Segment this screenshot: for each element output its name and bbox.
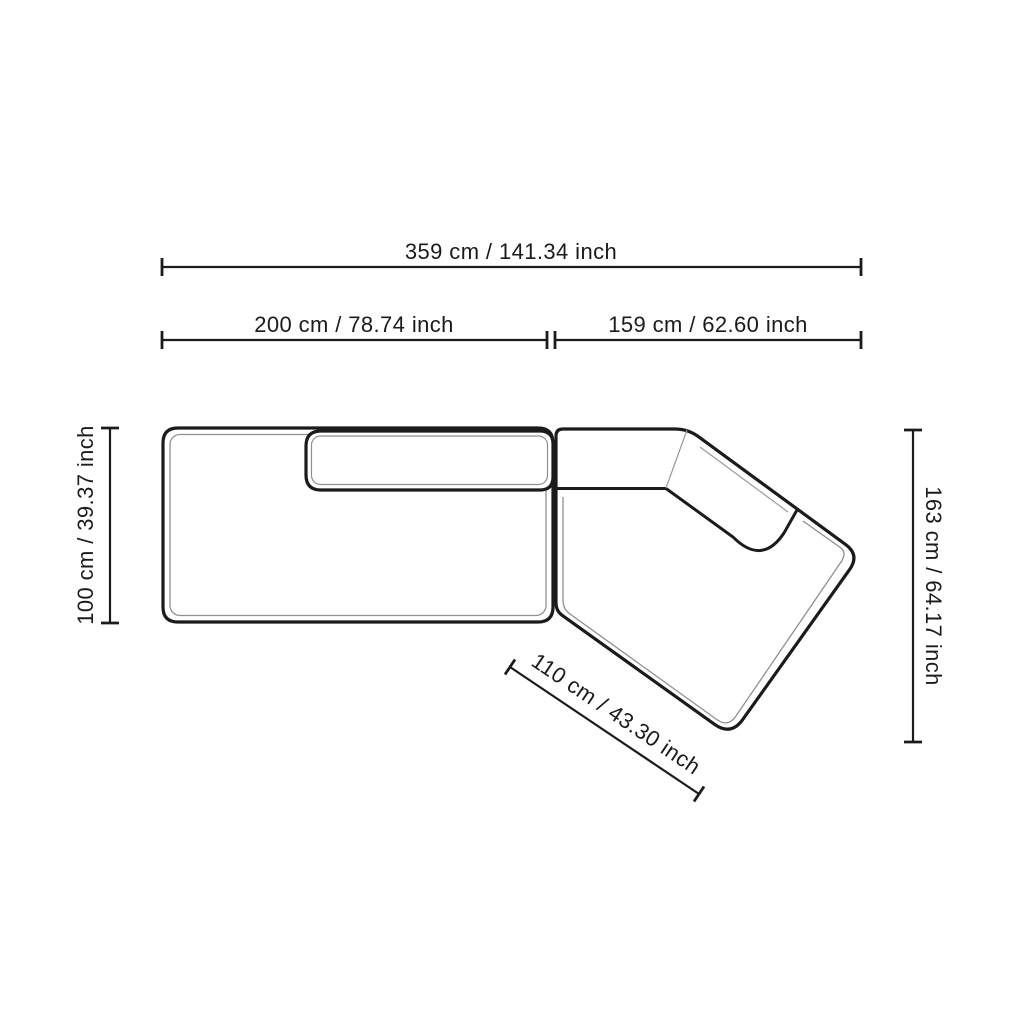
dim-label-left-depth: 100 cm / 39.37 inch xyxy=(73,425,98,625)
dim-label-right-depth: 163 cm / 64.17 inch xyxy=(921,486,946,686)
sofa-dimension-diagram: 359 cm / 141.34 inch 200 cm / 78.74 inch… xyxy=(0,0,1024,1024)
dim-label-right-width: 159 cm / 62.60 inch xyxy=(608,312,808,337)
diagram-canvas: 359 cm / 141.34 inch 200 cm / 78.74 inch… xyxy=(0,0,1024,1024)
sofa-drawing xyxy=(163,428,854,729)
sofa-left-backrest-outline xyxy=(306,431,553,490)
dim-right-depth xyxy=(904,430,922,742)
dim-label-total-width: 359 cm / 141.34 inch xyxy=(405,239,617,264)
dim-diagonal-tick-end xyxy=(694,787,704,802)
dim-diagonal-tick-start xyxy=(505,660,515,675)
sofa-right-module-outline xyxy=(556,429,854,729)
dim-left-depth xyxy=(101,428,119,623)
dim-label-left-width: 200 cm / 78.74 inch xyxy=(254,312,454,337)
